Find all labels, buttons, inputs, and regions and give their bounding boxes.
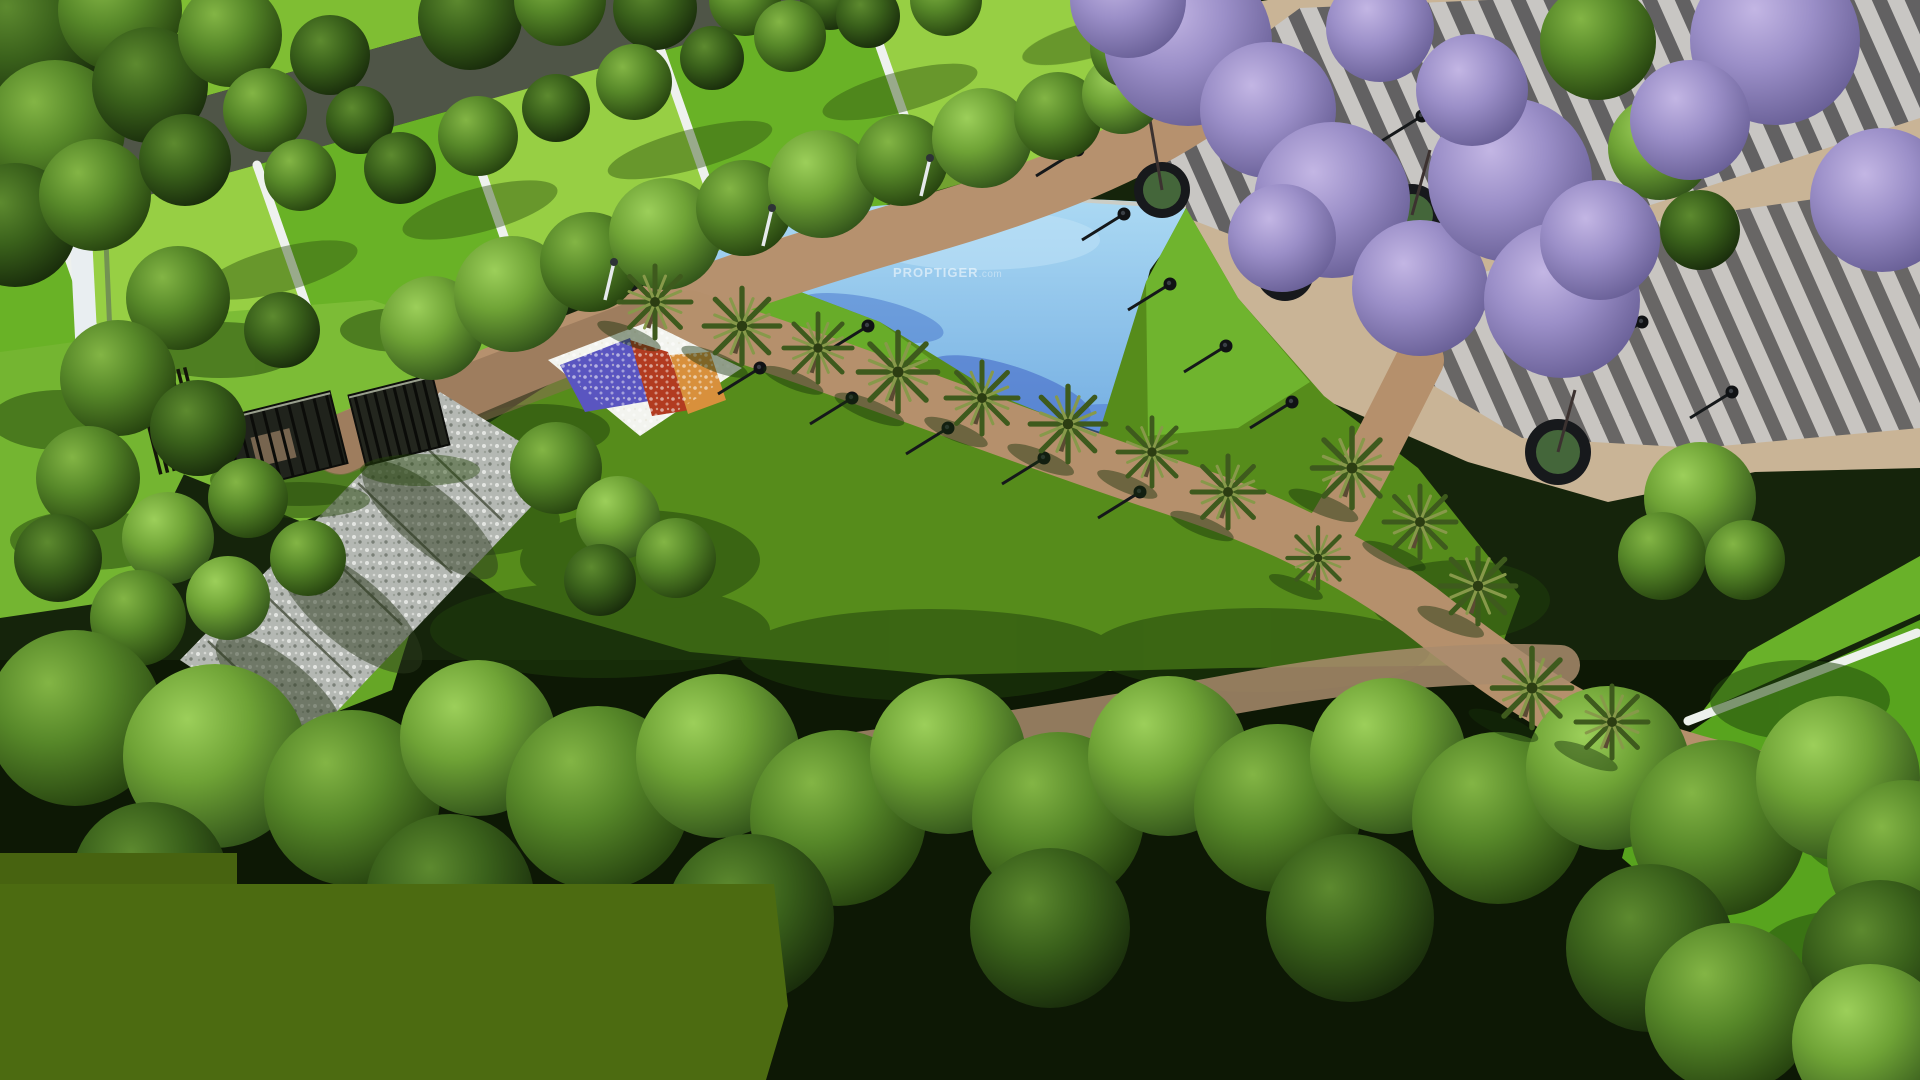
watermark-suffix: .com [979, 269, 1003, 280]
scene-render: PROPTIGER.com [0, 0, 1920, 1080]
watermark-brand: PROPTIGER [893, 265, 979, 280]
render-viewport: PROPTIGER.com [0, 0, 1920, 1080]
flat-green-patch [0, 853, 788, 1080]
